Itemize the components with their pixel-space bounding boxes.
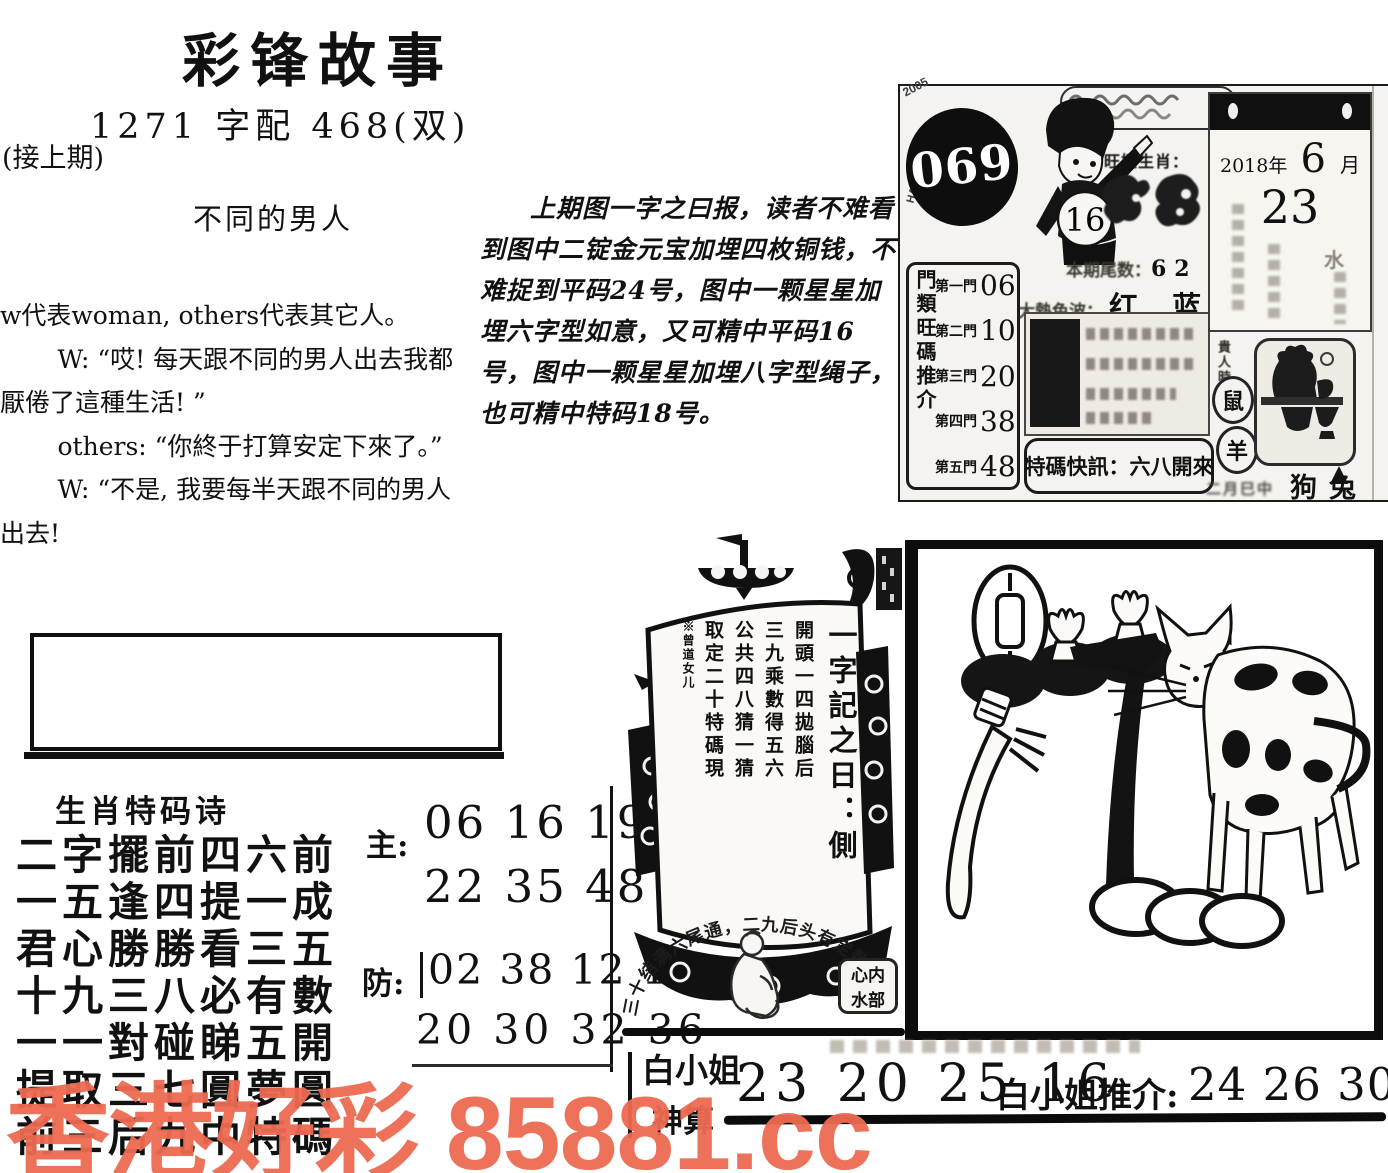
column-divider-line: [610, 786, 613, 1072]
guard-numbers-label: 防:: [362, 958, 404, 1003]
illegible-print: [1232, 204, 1244, 314]
main-numbers: 06 16 19: [424, 796, 648, 849]
sail-verse-title: 一字記之日：側: [820, 620, 862, 926]
calendar-faint-char: 水: [1324, 244, 1344, 273]
riddle-picture-box: [905, 540, 1383, 1040]
tail-number-row: 本期尾数：62: [1066, 256, 1198, 282]
poem-heading: 生肖特码诗: [55, 786, 230, 831]
tail-number-value: 62: [1151, 256, 1198, 282]
seated-figure-illustration: [731, 931, 778, 1017]
illegible-print: [1086, 328, 1198, 340]
recommend-numbers: 24 26 30 32 36: [1188, 1058, 1388, 1111]
empty-result-box: [30, 633, 502, 751]
illegible-print: [1086, 388, 1176, 400]
treasure-ship-section: 一字記之日：側 開頭一四拋腦后 三九乘數得五六 公共四八猜一猜 取定二十特碼現 …: [620, 534, 905, 1036]
zodiac-art-glyphs: [1102, 168, 1210, 234]
calendar-hole: [1342, 103, 1352, 119]
story-text: w代表woman, others代表其它人。 W: “哎! 每天跟不同的男人出去…: [0, 294, 472, 555]
section-divider-line: [622, 1028, 905, 1036]
sail-verse-line: 開頭一四拋腦后: [790, 620, 817, 926]
sail-verse-line: 三九乘數得五六: [760, 620, 787, 926]
illegible-print: [1086, 412, 1156, 424]
calendar-month: 6: [1301, 136, 1326, 182]
faint-tip-box: [1024, 312, 1210, 436]
previous-issue-analysis: 上期图一字之曰报，读者不难看到图中二锭金元宝加埋四枚铜钱，不难捉到平码24号，图…: [480, 188, 898, 434]
site-watermark: 香港好彩 85881.cc: [6, 1048, 872, 1173]
card-edge-line: [1372, 86, 1374, 500]
cat-riddle-illustration: [918, 549, 1374, 1031]
divider-line: [24, 752, 504, 759]
calendar-year: 2018年: [1220, 151, 1287, 178]
doors-label: 門類旺碼推介: [913, 269, 935, 483]
door-name: 第一門: [935, 276, 977, 296]
calendar-binding: [1210, 94, 1370, 130]
story-line: W: “哎! 每天跟不同的男人出去我都厭倦了這種生活! ”: [0, 338, 472, 425]
door-value: 48: [980, 450, 1016, 483]
story-line: W: “不是, 我要每半天跟不同的男人出去!: [0, 468, 472, 555]
door-value: 20: [980, 360, 1016, 393]
ink-stamp-illustration: [1254, 338, 1356, 466]
recommend-label: 白小姐推介:: [996, 1068, 1179, 1117]
poem-line: 十九三八必有數: [16, 973, 338, 1020]
lottery-tip-sheet: 彩锋故事 1271 字配 468(双) (接上期) 不同的男人 w代表woman…: [0, 0, 1388, 1173]
seal-row: 心内: [841, 961, 895, 986]
frame-tick-line: [420, 952, 423, 998]
story-line: others: “你終于打算安定下來了。”: [0, 425, 472, 469]
illegible-print: [1086, 358, 1198, 370]
sail-verse-line: 取定二十特碼現: [700, 620, 727, 926]
illegible-print: [1268, 244, 1280, 319]
door-name: 第三門: [935, 366, 977, 386]
dark-ink-block: [1030, 319, 1080, 427]
seal-row: 水部: [841, 986, 895, 1011]
sail-verse-line: 公共四八猜一猜: [730, 620, 757, 926]
zodiac-circle-rat: 鼠: [1212, 376, 1254, 424]
door-value: 38: [980, 405, 1016, 438]
poem-line: 君心勝勝看三五: [16, 926, 338, 973]
calendar-month-unit: 月: [1340, 149, 1360, 178]
main-numbers-label: 主:: [366, 820, 408, 865]
continued-note: (接上期): [2, 136, 104, 175]
door-recommendation-box: 門類旺碼推介 第一門06 第二門10 第三門20 第四門38 第五門48: [906, 262, 1020, 490]
lottery-info-card: 2005 HAIMARK SIX 069 16 旺極生肖：: [898, 84, 1388, 502]
zodiac-circle-goat: 羊: [1216, 426, 1258, 474]
illegible-print: [830, 1040, 1140, 1053]
issue-subtitle: 1271 字配 468(双): [90, 98, 470, 149]
door-name: 第四門: [935, 411, 977, 431]
calendar: 2018年 6 月 23 水: [1208, 92, 1372, 332]
sail-verse: 一字記之日：側 開頭一四拋腦后 三九乘數得五六 公共四八猜一猜 取定二十特碼現 …: [654, 620, 865, 926]
page-title: 彩锋故事: [182, 14, 454, 98]
story-title: 不同的男人: [193, 196, 353, 238]
door-row: 第三門20: [935, 360, 1016, 393]
story-intro: w代表woman, others代表其它人。: [0, 294, 472, 338]
door-name: 第二門: [935, 321, 977, 341]
door-row: 第四門38: [935, 405, 1016, 438]
door-row: 第二門10: [935, 314, 1016, 347]
card-side-year: 2005: [900, 75, 930, 100]
special-code-flash: 特碼快訊：六八開來: [1024, 438, 1214, 494]
lunar-note: 二月巳中: [1206, 478, 1274, 499]
issue-number-badge: 069: [900, 102, 1024, 231]
boy-belly-number: 16: [1065, 201, 1106, 239]
door-value: 10: [980, 314, 1016, 347]
sail-signature: ※曾道女儿: [680, 620, 697, 926]
calendar-hole: [1228, 103, 1238, 119]
door-name: 第五門: [935, 457, 977, 477]
animal-pair: 狗兔: [1290, 466, 1368, 505]
insider-seal: 心内 水部: [838, 958, 898, 1014]
door-row: 第五門48: [935, 450, 1016, 483]
door-row: 第一門06: [935, 269, 1016, 302]
poem-line: 二字擺前四六前: [16, 832, 338, 879]
door-value: 06: [980, 269, 1016, 302]
poem-line: 一五逢四提一成: [16, 879, 338, 926]
tail-number-label: 本期尾数：: [1066, 261, 1151, 280]
illegible-print: [1334, 272, 1346, 324]
